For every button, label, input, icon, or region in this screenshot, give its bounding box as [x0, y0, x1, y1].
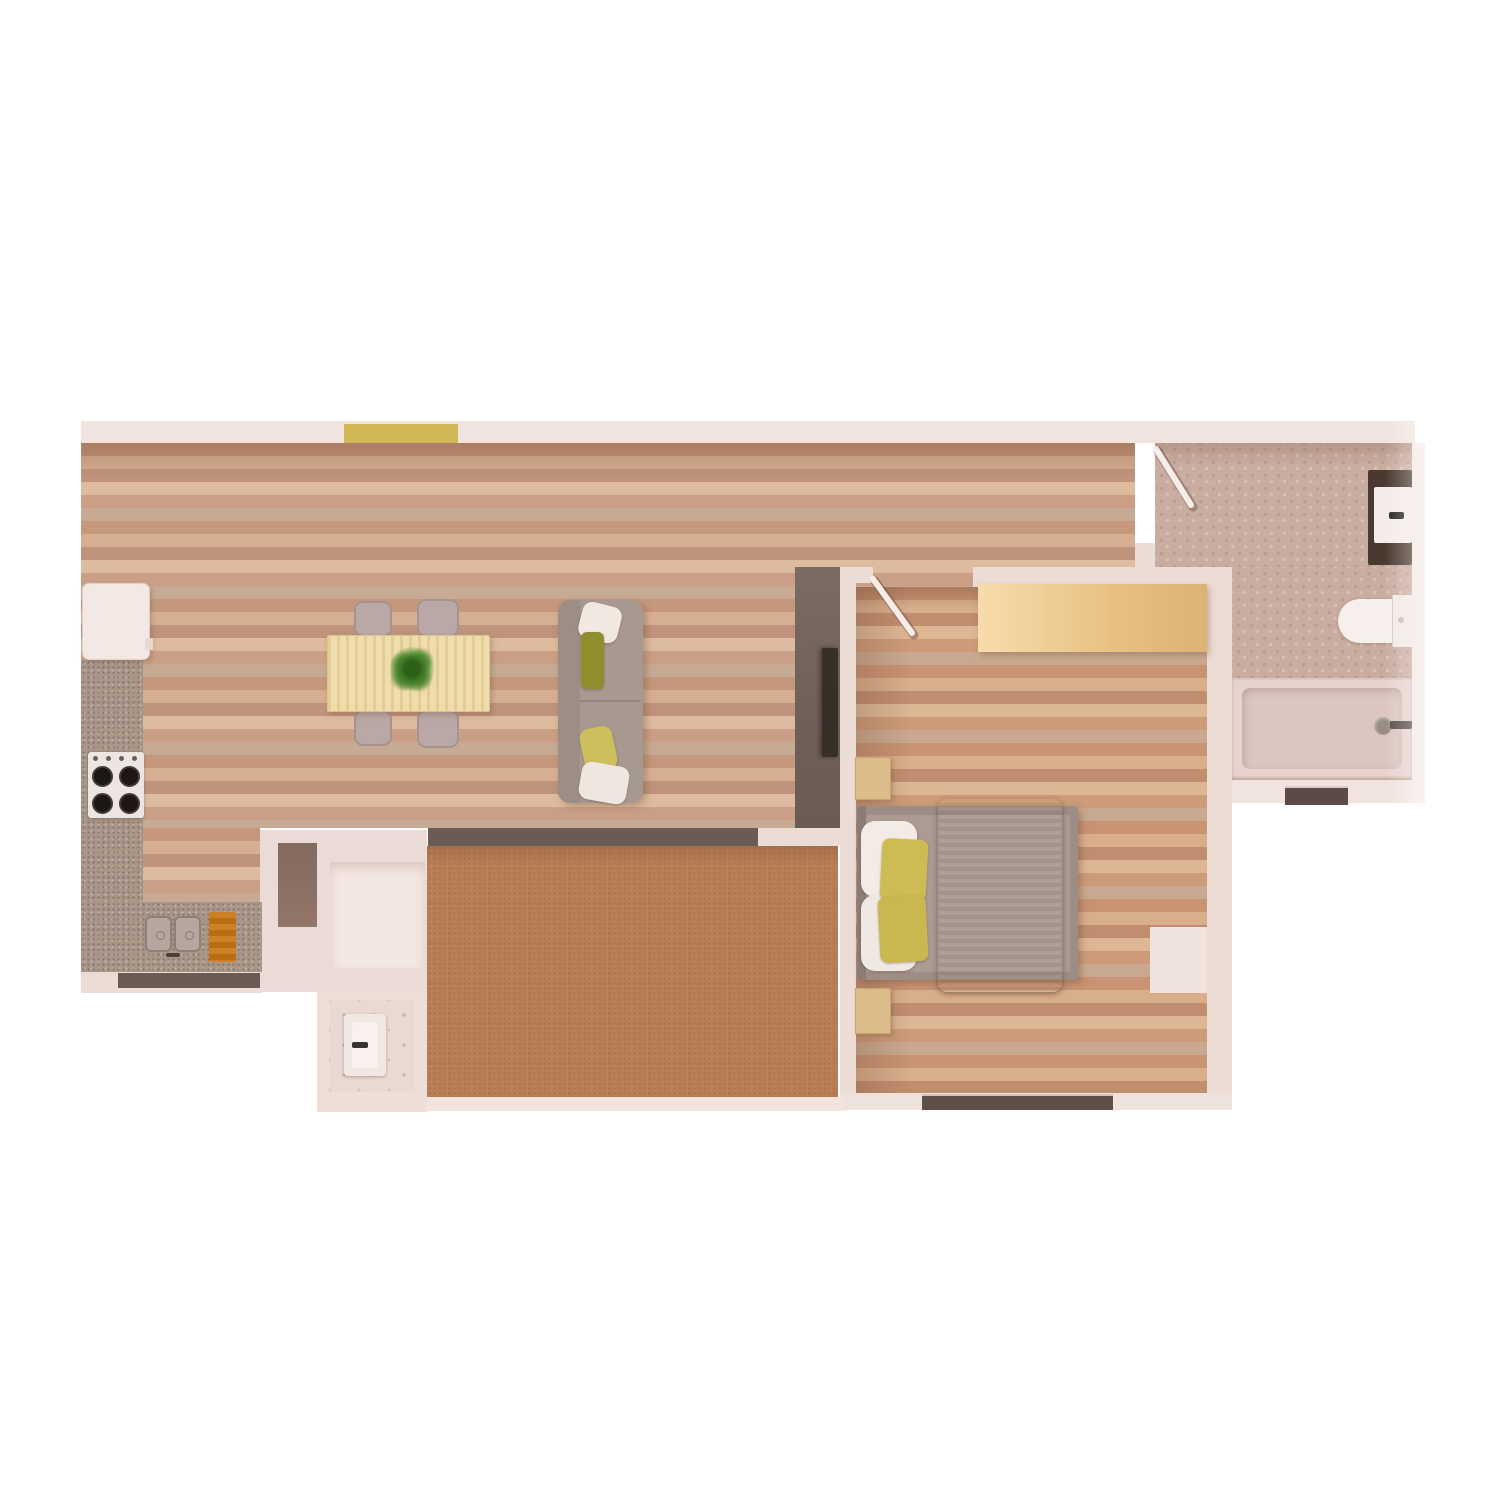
door-leaves — [0, 0, 1500, 1500]
top-edge-fade — [0, 405, 1500, 422]
right-edge-fade — [1385, 400, 1500, 830]
bedroom-door-leaf — [873, 579, 912, 633]
left-edge-fade — [62, 400, 82, 1020]
floor-plan — [0, 0, 1500, 1500]
entry-door-leaf — [1156, 449, 1191, 505]
